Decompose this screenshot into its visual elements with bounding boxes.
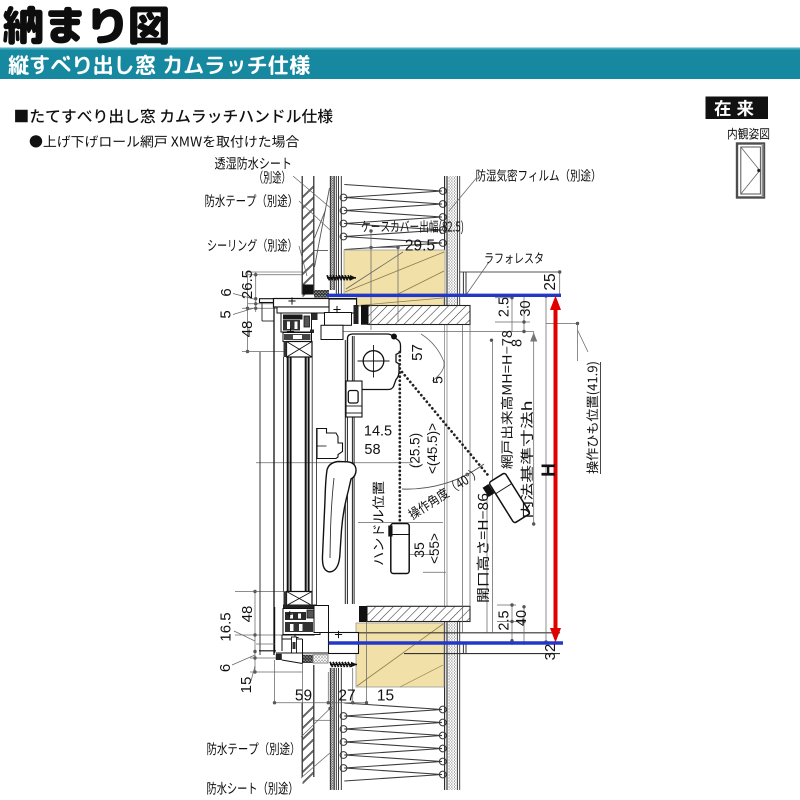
- svg-text:57: 57: [409, 344, 426, 361]
- svg-text:48: 48: [239, 606, 256, 623]
- svg-text:29.5: 29.5: [405, 238, 435, 255]
- svg-text:15: 15: [377, 688, 394, 705]
- svg-text:35: 35: [411, 542, 427, 558]
- svg-text:14.5: 14.5: [364, 424, 392, 440]
- svg-text:6: 6: [218, 288, 235, 296]
- svg-text:58: 58: [364, 442, 380, 458]
- svg-text:48: 48: [239, 321, 256, 338]
- svg-text:16.5: 16.5: [218, 612, 235, 641]
- svg-text:25: 25: [542, 273, 559, 290]
- svg-text:5: 5: [430, 376, 446, 384]
- svg-text:H: H: [539, 463, 560, 477]
- svg-text:40: 40: [514, 610, 530, 626]
- svg-text:2.5: 2.5: [497, 297, 513, 317]
- svg-text:27: 27: [338, 688, 355, 705]
- svg-text:<55>: <55>: [427, 533, 442, 564]
- svg-text:59: 59: [295, 688, 312, 705]
- svg-text:(25.5): (25.5): [408, 433, 423, 468]
- svg-text:30: 30: [518, 300, 534, 316]
- svg-text:6: 6: [217, 664, 234, 672]
- svg-text:5: 5: [218, 310, 235, 318]
- svg-text:15: 15: [238, 677, 255, 694]
- svg-text:2.5: 2.5: [497, 610, 513, 630]
- svg-text:8: 8: [510, 339, 526, 347]
- svg-text:32: 32: [542, 644, 559, 661]
- svg-text:26.5: 26.5: [239, 270, 256, 299]
- svg-text:<(45.5)>: <(45.5)>: [425, 423, 440, 474]
